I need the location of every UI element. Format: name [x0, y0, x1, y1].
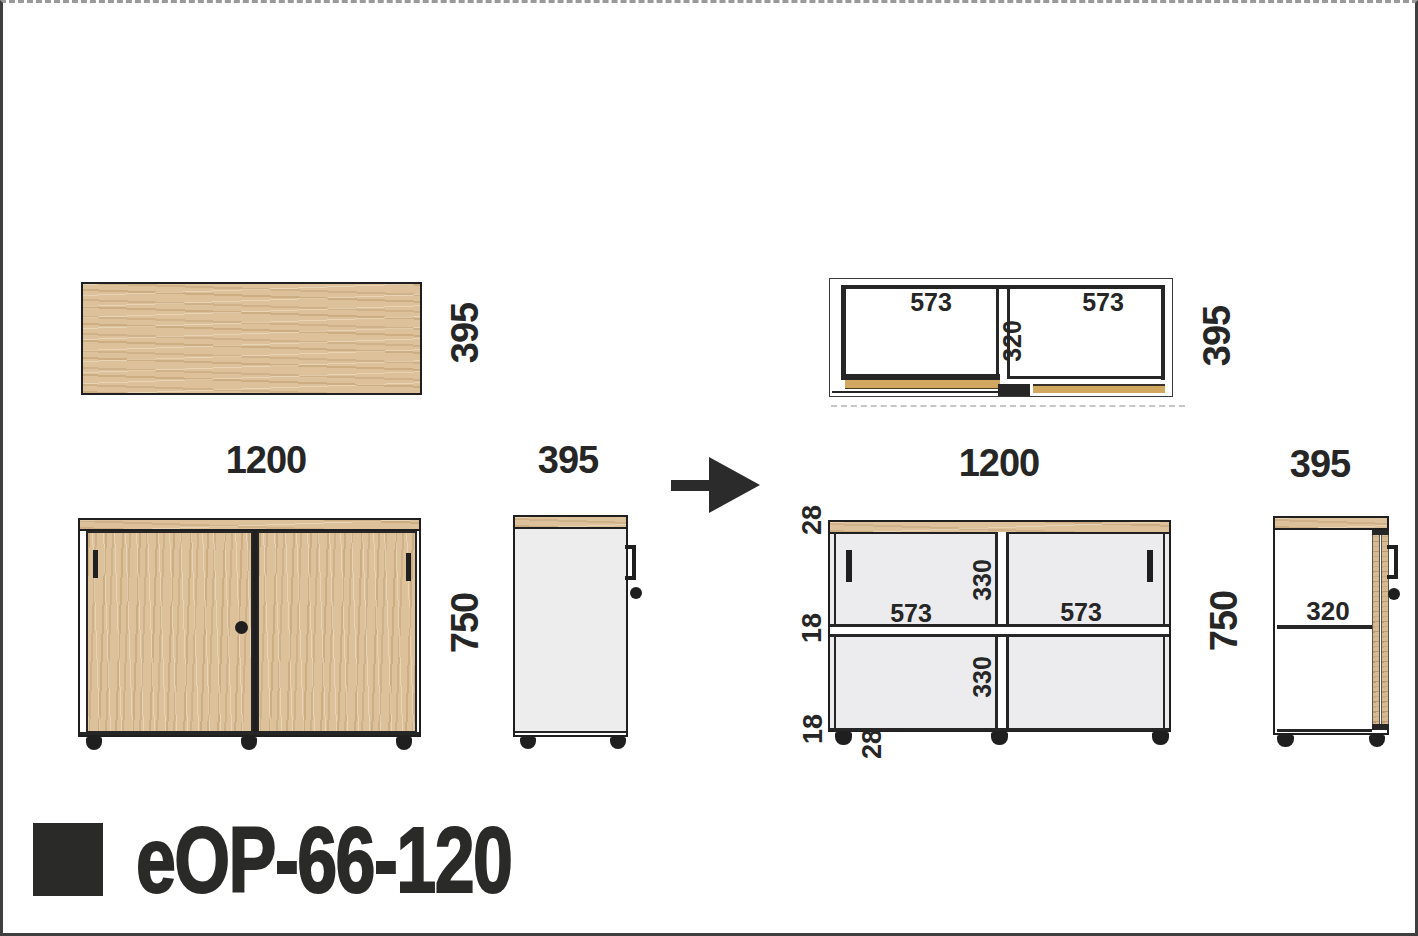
foot [520, 737, 536, 749]
side-plinth [515, 733, 626, 735]
left-sliding-door [86, 531, 253, 733]
dim-plan-right-width: 573 [1053, 287, 1153, 317]
foot [991, 732, 1008, 745]
side-section-bottom-line [1277, 729, 1372, 732]
dim-side-depth: 395 [508, 440, 628, 480]
side-section-inner-door [1372, 530, 1380, 730]
product-swatch [33, 823, 103, 896]
dim-top-view-depth: 395 [415, 283, 515, 383]
dim-bottom-thickness: 18 [783, 699, 843, 759]
side-section-top-panel [1275, 518, 1387, 530]
plan-left-wall [841, 285, 846, 380]
dim-section-left-width: 573 [861, 598, 961, 628]
foot [1277, 735, 1294, 747]
side-section-knob-icon [1388, 588, 1400, 600]
top-view-panel [81, 282, 422, 395]
plan-door-overlap [998, 384, 1030, 396]
foot [1152, 732, 1169, 745]
dim-section-height: 750 [1174, 571, 1274, 671]
right-arrow-icon [671, 480, 711, 491]
dim-side-section-shelf-depth: 320 [1288, 596, 1368, 626]
dim-shelf-thickness: 18 [782, 598, 842, 658]
side-handle-icon [625, 545, 636, 580]
foot [1369, 735, 1385, 747]
foot [396, 737, 412, 750]
product-code: eOP-66-120 [136, 818, 511, 902]
foot [241, 737, 257, 750]
dim-upper-height: 330 [952, 550, 1012, 610]
left-door-handle [93, 550, 98, 578]
foot [610, 737, 626, 749]
front-view [78, 518, 421, 737]
dim-lower-height: 330 [952, 647, 1012, 707]
foot [86, 737, 102, 750]
dim-plan-depth: 395 [1167, 286, 1267, 386]
door-top-roller [1372, 530, 1389, 535]
right-arrow-head-icon [709, 457, 760, 513]
plan-left-door [845, 380, 1000, 389]
dim-top-thickness: 28 [782, 490, 842, 550]
door-bottom-roller [1372, 724, 1389, 730]
plan-left-track-line [832, 391, 1004, 393]
dim-plan-left-width: 573 [881, 287, 981, 317]
dim-plan-mid-depth: 320 [982, 311, 1042, 371]
side-section-handle-icon [1387, 545, 1398, 579]
section-right-handle [1147, 550, 1153, 582]
right-door-handle [406, 553, 411, 581]
dim-front-height: 750 [415, 573, 515, 673]
dim-top-view-width: 1200 [176, 440, 356, 480]
front-top-edge [80, 520, 419, 531]
furniture-spec-sheet: 395 1200 750 395 573 [0, 0, 1418, 936]
dim-section-width: 1200 [909, 443, 1089, 483]
section-left-handle [846, 550, 852, 582]
side-knob-icon [630, 587, 642, 599]
cut-line [831, 405, 1185, 407]
dim-section-right-width: 573 [1031, 597, 1131, 627]
front-bottom-line [80, 732, 419, 735]
side-top-edge [515, 517, 626, 529]
lock-icon [235, 621, 248, 634]
plan-right-door [1033, 384, 1165, 393]
dim-side-section-depth: 395 [1260, 444, 1380, 484]
plan-right-wall [1161, 285, 1166, 380]
right-sliding-door [257, 531, 417, 733]
plan-right-track-line [1007, 376, 1163, 379]
side-view [513, 515, 628, 737]
dim-plinth-height: 28 [842, 714, 902, 774]
